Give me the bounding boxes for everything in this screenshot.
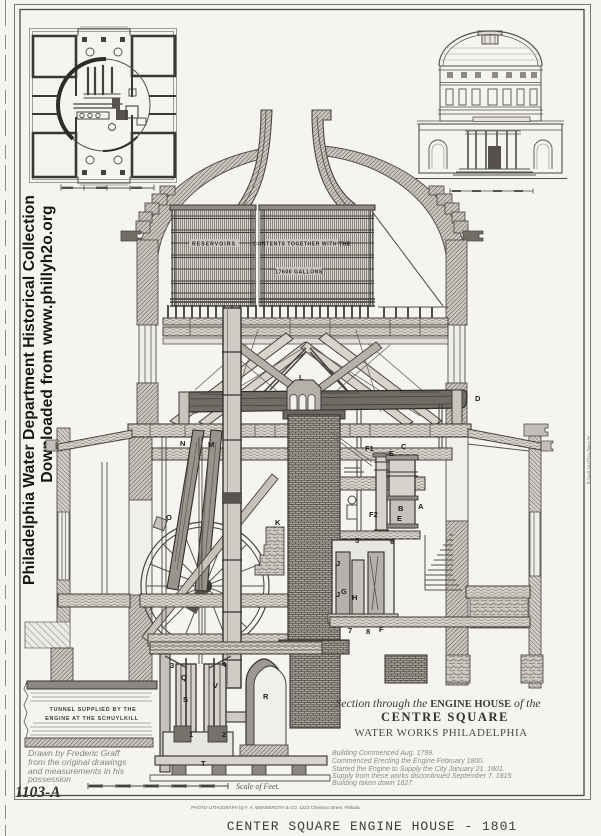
svg-text:Building Commenced Aug. 1799.: Building Commenced Aug. 1799. (332, 750, 434, 757)
svg-text:TUNNEL SUPPLIED BY THE: TUNNEL SUPPLIED BY THE (50, 707, 137, 713)
svg-text:V: V (213, 681, 218, 690)
svg-text:Building taken down 1827.: Building taken down 1827. (332, 780, 414, 787)
svg-text:17600 GALLONS: 17600 GALLONS (275, 270, 323, 276)
svg-text:E: E (397, 514, 402, 523)
svg-text:1103-A: 1103-A (15, 784, 61, 801)
svg-text:F1: F1 (365, 444, 374, 453)
svg-text:T: T (201, 759, 206, 768)
svg-text:Philadelphia Water Department: Philadelphia Water Department Historical… (21, 195, 38, 585)
svg-text:E: E (389, 449, 394, 458)
svg-text:ENGINE AT THE SCHUYLKILL: ENGINE AT THE SCHUYLKILL (45, 716, 138, 722)
svg-text:2: 2 (222, 730, 226, 739)
svg-text:Q: Q (181, 673, 187, 682)
svg-text:A: A (418, 502, 424, 511)
svg-text:CENTER SQUARE ENGINE HOUSE: CENTER SQUARE ENGINE HOUSE - 1801 (227, 819, 517, 834)
svg-text:M: M (208, 440, 214, 449)
svg-text:J: J (336, 559, 340, 568)
svg-text:R.Graff Del.Phila.Water W: R.Graff Del.Phila.Water W (586, 435, 591, 485)
svg-text:H: H (352, 593, 357, 602)
svg-text:R: R (263, 692, 269, 701)
svg-text:6: 6 (390, 537, 394, 546)
svg-text:8: 8 (366, 627, 370, 636)
svg-text:B: B (398, 504, 404, 513)
svg-text:O: O (166, 513, 172, 522)
svg-text:Section through the ENGINE HOU: Section through the ENGINE HOUSE of the (335, 696, 540, 710)
svg-text:RESERVOIRS: RESERVOIRS (192, 242, 236, 248)
svg-text:S: S (183, 695, 188, 704)
svg-text:Supply from these works discon: Supply from these works discontinued Sep… (332, 773, 513, 780)
svg-text:WATER WORKS PHILADELPHIA: WATER WORKS PHILADELPHIA (354, 727, 527, 739)
svg-text:CONTENTS TOGETHER WITH THE: CONTENTS TOGETHER WITH THE (253, 242, 351, 248)
svg-text:CENTRE SQUARE: CENTRE SQUARE (381, 710, 509, 724)
svg-text:K: K (275, 518, 281, 527)
svg-text:Scale of Feet.: Scale of Feet. (236, 782, 280, 791)
svg-text:PHOTO-LITHOGRAPH by F. A. WEND: PHOTO-LITHOGRAPH by F. A. WENDEROTH & CO… (191, 805, 360, 810)
svg-text:D: D (475, 394, 481, 403)
svg-text:5: 5 (355, 536, 359, 545)
svg-text:J: J (336, 590, 340, 599)
svg-text:F: F (379, 625, 384, 634)
svg-text:C: C (401, 442, 407, 451)
svg-text:N: N (180, 439, 185, 448)
svg-text:L: L (299, 373, 304, 382)
svg-text:possession: possession (27, 774, 71, 784)
svg-text:7: 7 (348, 626, 352, 635)
svg-text:G: G (341, 587, 347, 596)
svg-text:3: 3 (170, 661, 174, 670)
svg-text:Commenced Erecting the Engine: Commenced Erecting the Engine February 1… (332, 758, 484, 765)
svg-text:Started the Engine to Supply t: Started the Engine to Supply the City Ja… (332, 766, 505, 773)
svg-text:F2: F2 (369, 510, 378, 519)
svg-text:1: 1 (189, 730, 193, 739)
